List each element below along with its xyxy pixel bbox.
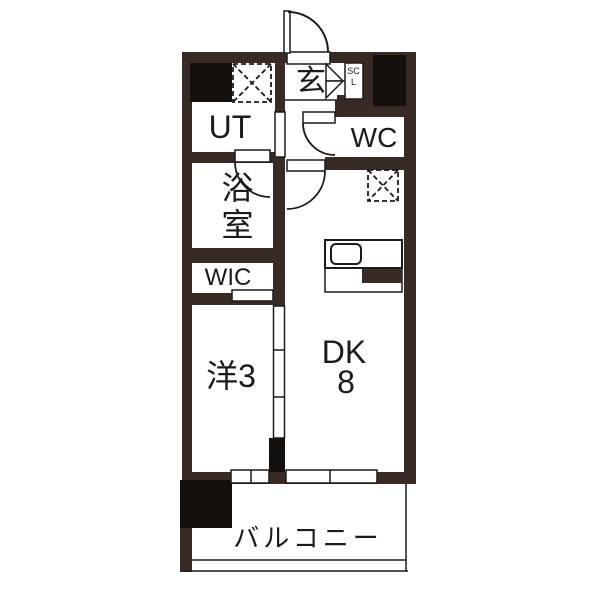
pillar-balcony-left: [180, 480, 232, 528]
entrance-label: 玄: [293, 66, 329, 98]
balcony-label: バルコニー: [225, 524, 391, 552]
wc-label: WC: [349, 123, 399, 153]
dk-size-label: 8: [322, 366, 370, 398]
western-room-label: 洋3: [206, 359, 256, 393]
floorplan-canvas: 玄 SCL UT WC 浴室 WIC 洋3 DK 8 バルコニー: [0, 0, 600, 600]
bathroom-label: 浴室: [220, 170, 255, 244]
wall-wic-bottom: [182, 293, 285, 305]
wall-bath-wic: [182, 248, 273, 263]
wall-wc-bottom: [325, 157, 404, 170]
pillar-slide-bottom: [269, 438, 285, 472]
wall-hall-left: [275, 63, 285, 305]
walk-in-closet-label: WIC: [203, 265, 253, 291]
utility-label: UT: [205, 110, 255, 144]
pillar-top-left: [190, 63, 232, 102]
entrance-door-leaf: [284, 11, 290, 53]
shoe-closet-label: SCL: [347, 66, 360, 87]
entrance-door-arc: [288, 12, 328, 52]
pillar-top-right: [373, 55, 406, 106]
wall-slide-top: [273, 290, 285, 306]
wall-ut-bottom: [182, 152, 275, 163]
room-dining-kitchen: [285, 170, 404, 472]
